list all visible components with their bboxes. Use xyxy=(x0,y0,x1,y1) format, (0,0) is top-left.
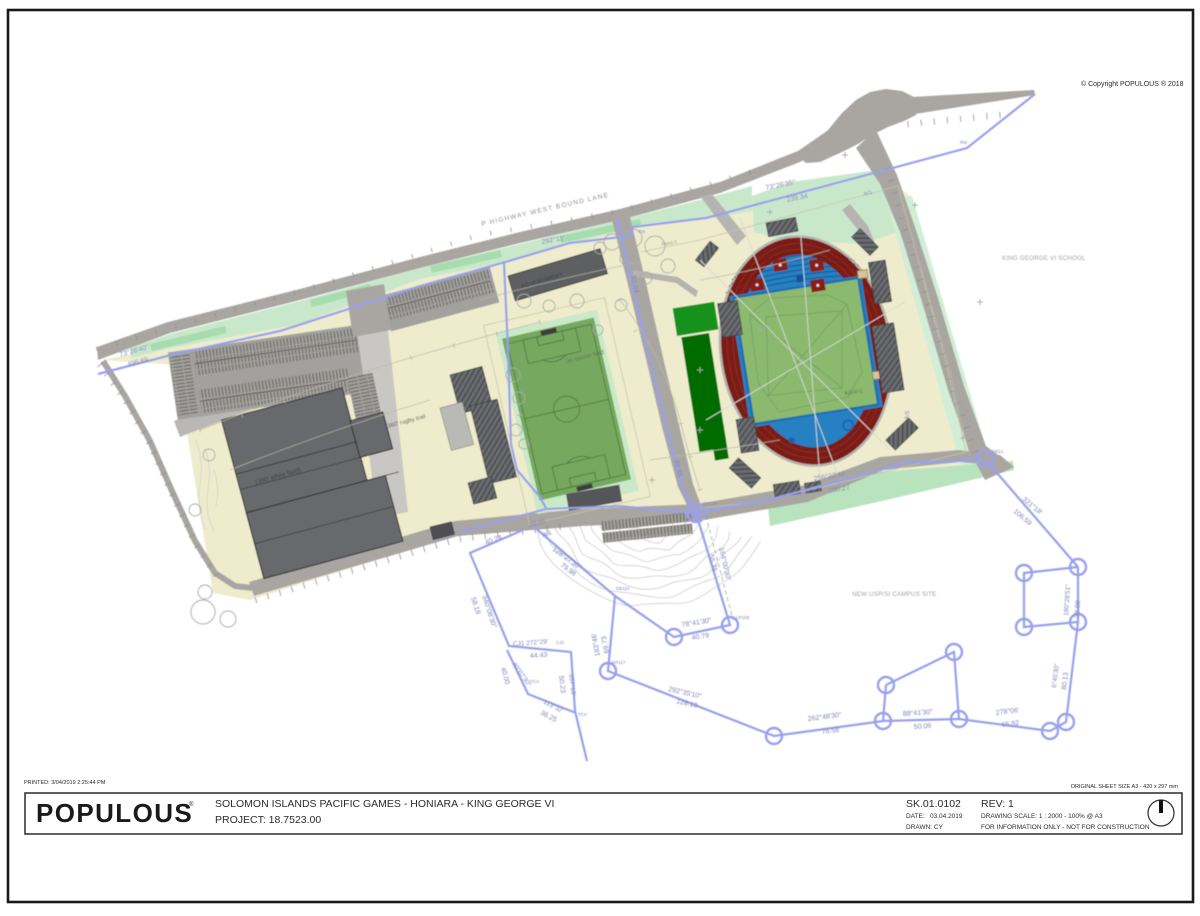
svg-text:03.04.2019: 03.04.2019 xyxy=(930,813,963,820)
svg-text:DB12: DB12 xyxy=(992,449,1004,454)
svg-text:NEW USP/SI CAMPUS SITE: NEW USP/SI CAMPUS SITE xyxy=(852,591,937,598)
svg-text:DB110: DB110 xyxy=(616,586,630,591)
svg-text:KING GEORGE VI SCHOOL: KING GEORGE VI SCHOOL xyxy=(1002,255,1086,262)
svg-text:TCV: TCV xyxy=(530,679,539,684)
svg-text:50.06: 50.06 xyxy=(914,723,932,731)
svg-text:REV: 1: REV: 1 xyxy=(981,798,1014,810)
svg-text:POPULOUS: POPULOUS xyxy=(36,798,193,828)
svg-text:PRINTED: 3/04/2019 2:25:44 PM: PRINTED: 3/04/2019 2:25:44 PM xyxy=(24,780,106,786)
svg-text:PROJECT: 18.7523.00: PROJECT: 18.7523.00 xyxy=(215,814,321,826)
svg-text:DATE:: DATE: xyxy=(906,813,925,820)
svg-text:© Copyright POPULOUS ® 2018: © Copyright POPULOUS ® 2018 xyxy=(1081,80,1184,88)
svg-text:ORIGINAL SHEET SIZE A3 - 420 x: ORIGINAL SHEET SIZE A3 - 420 x 297 mm xyxy=(1071,784,1179,790)
svg-text:FOR INFORMATION ONLY - NOT FOR: FOR INFORMATION ONLY - NOT FOR CONSTRUCT… xyxy=(981,824,1150,831)
svg-text:38.88: 38.88 xyxy=(1074,600,1082,618)
svg-text:SOLOMON ISLANDS PACIFIC GAMES: SOLOMON ISLANDS PACIFIC GAMES - HONIARA … xyxy=(215,798,554,810)
svg-text:DRAWN: CY: DRAWN: CY xyxy=(906,824,944,831)
svg-text:®: ® xyxy=(189,801,194,808)
svg-text:44.43: 44.43 xyxy=(530,652,548,660)
svg-text:KR117: KR117 xyxy=(612,660,626,665)
svg-text:DRAWING SCALE: 1 : 2000 - 100: DRAWING SCALE: 1 : 2000 - 100% @ A3 xyxy=(981,813,1103,820)
svg-text:LR109: LR109 xyxy=(736,615,750,620)
svg-text:TCV: TCV xyxy=(578,712,587,717)
svg-text:SK.01.0102: SK.01.0102 xyxy=(906,798,961,810)
svg-text:DR118: DR118 xyxy=(703,501,717,506)
svg-text:RM: RM xyxy=(638,229,645,234)
svg-text:RM: RM xyxy=(960,140,967,145)
svg-text:CJ2: CJ2 xyxy=(556,640,564,645)
